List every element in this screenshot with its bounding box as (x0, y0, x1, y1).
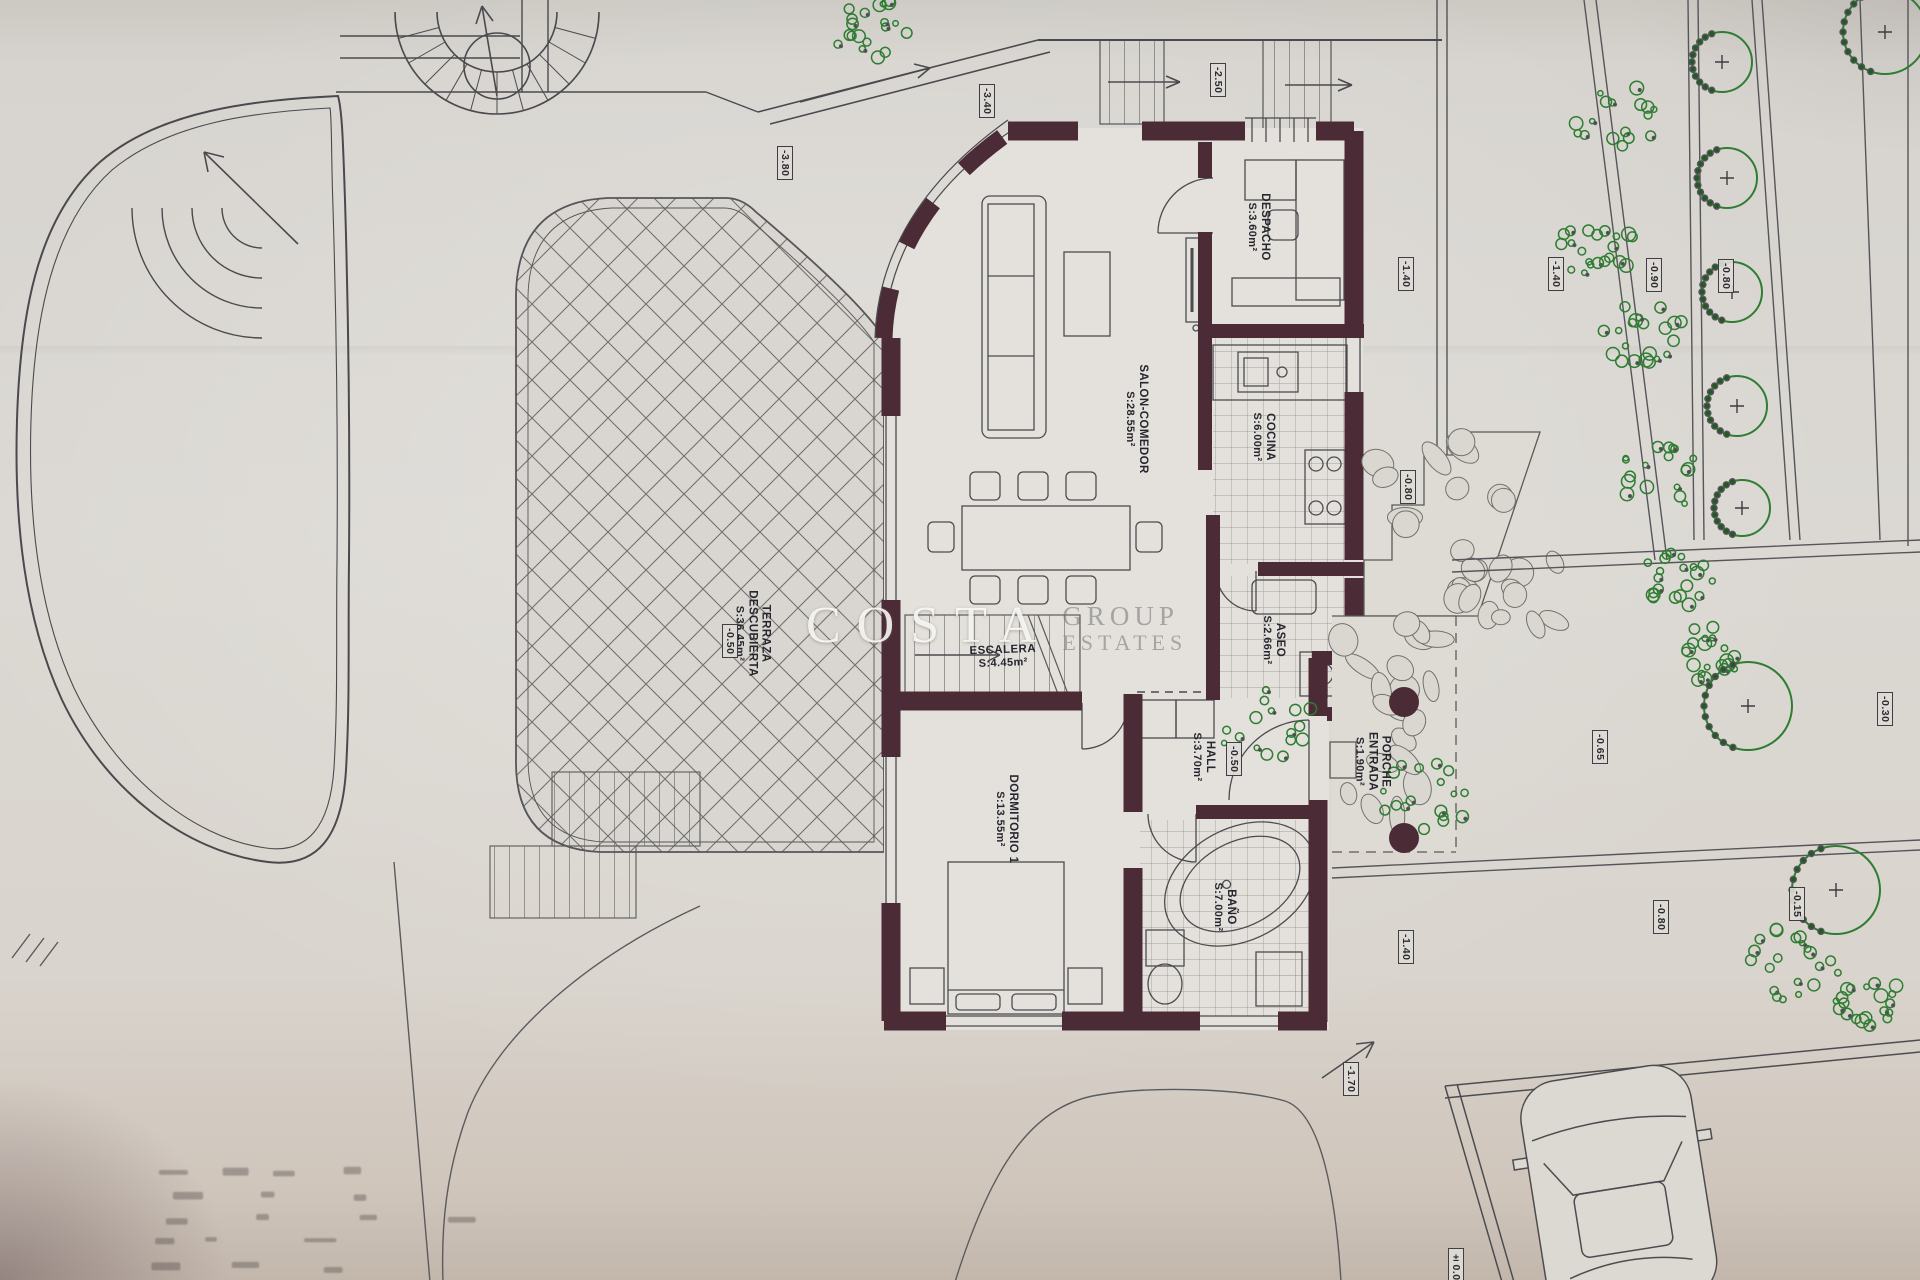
compass-feature (336, 0, 758, 114)
elevation-marker: -1.40 (1398, 257, 1414, 291)
elevation-marker: -0.80 (1718, 259, 1734, 293)
elevation-marker: -1.70 (1343, 1062, 1359, 1096)
ramp-lines (758, 40, 1050, 124)
elevation-marker: -0.80 (1400, 470, 1416, 504)
elevation-marker: -0.50 (1226, 742, 1242, 776)
elevation-marker: -1.40 (1548, 257, 1564, 291)
car-mirror (1697, 1129, 1712, 1141)
porch-column (1389, 687, 1419, 717)
north-arrow-icon (476, 6, 497, 96)
room-label-cocina: COCINAS:6.00m² (1250, 387, 1276, 487)
shrub-icon (834, 0, 912, 64)
shrub-icon (1682, 621, 1741, 686)
elevation-marker: -3.80 (777, 146, 793, 180)
elevation-marker: -0.90 (1646, 258, 1662, 292)
floorplan-scan: SALON-COMEDORS:28.55m² DESPACHOS:3.60m² … (0, 0, 1920, 1280)
elevation-marker: -0.15 (1789, 887, 1805, 921)
kitchen-floor (1213, 338, 1347, 564)
elevation-marker: -0.65 (1592, 730, 1608, 764)
room-label-bano: BAÑOS:7.00m² (1211, 867, 1237, 947)
elevation-marker: -0.30 (1877, 692, 1893, 726)
garden-mound-line (955, 1089, 1341, 1280)
room-label-dormitorio-1: DORMITORIO 1S:13.55m² (993, 744, 1019, 894)
tree-icon (1701, 662, 1792, 751)
room-label-despacho: DESPACHOS:3.60m² (1245, 177, 1271, 277)
pool-steps-arcs (132, 208, 262, 338)
elevation-marker: -3.40 (979, 84, 995, 118)
car-mirror (1513, 1158, 1528, 1170)
faded-stamp-marks (151, 1167, 475, 1273)
room-label-aseo: ASEOS:2.66m² (1260, 600, 1286, 680)
room-label-hall: HALLS:3.70m² (1190, 717, 1216, 797)
pool (17, 96, 350, 863)
elevation-marker: -0.50 (722, 624, 738, 658)
room-label-terraza-descubierta: TERRAZADESCUBIERTAS:36.45m² (733, 574, 772, 694)
room-label-escalera: ESCALERAS:4.45m² (948, 642, 1059, 672)
tree-icon (1694, 147, 1757, 209)
plan-linework (0, 0, 1920, 1280)
elevation-marker: -2.50 (1210, 63, 1226, 97)
fence-ticks-icon (12, 934, 58, 966)
shrub-icon (1746, 923, 1841, 1002)
porch-column (1389, 823, 1419, 853)
shrub-icon (1833, 978, 1902, 1032)
room-label-porche-entrada: PORCHEENTRADAS:1.90m² (1353, 707, 1392, 817)
shrub-icon (1598, 302, 1687, 368)
ramp-arrow-icon (800, 64, 930, 102)
terrace (490, 198, 884, 918)
elevation-marker: -1.40 (1398, 930, 1414, 964)
room-label-salon-comedor: SALON-COMEDORS:28.55m² (1123, 344, 1149, 494)
elevation-marker: ±0.00 (1448, 1248, 1464, 1280)
elevation-marker: -0.80 (1653, 900, 1669, 934)
car (1502, 1058, 1736, 1280)
driveway (1322, 1040, 1920, 1280)
tree-icon (1711, 479, 1770, 538)
pool-arrow (204, 152, 298, 244)
tree-icon (1704, 375, 1767, 437)
